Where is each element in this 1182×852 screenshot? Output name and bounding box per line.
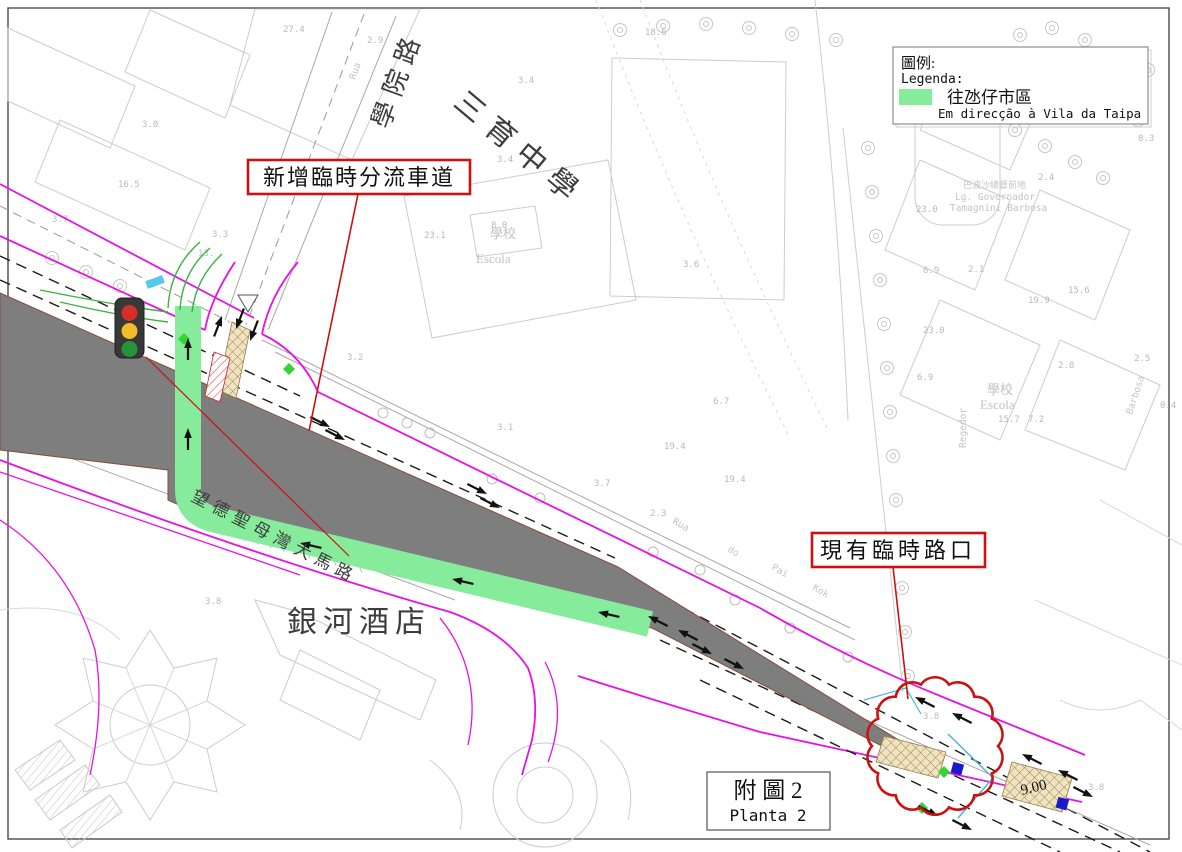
traffic-light-red: [122, 305, 138, 321]
measurement-label: 3.0: [142, 120, 158, 130]
drawing-number-pt: Planta 2: [729, 806, 806, 825]
escola-right-pt: Escola: [980, 397, 1015, 412]
legend: 圖例: Legenda: 往氹仔市區 Em direcção à Vila da…: [893, 47, 1151, 127]
measurement-label: 8.0: [491, 221, 507, 231]
measurement-label: 3.7: [594, 479, 610, 489]
traffic-light-yellow: [122, 323, 138, 339]
measurement-label: 3.3: [212, 230, 228, 240]
escola-right-cn: 學校: [987, 382, 1013, 397]
measurement-label: 16.5: [118, 180, 140, 190]
measurement-label: 6.9: [917, 373, 933, 383]
callout-existing-junction-label: 現有臨時路口: [820, 538, 976, 563]
measurement-label: 2.1: [968, 265, 984, 275]
measurement-label: 19.9: [1028, 296, 1050, 306]
measurement-label: 15.6: [1068, 286, 1090, 296]
legend-title-pt: Legenda:: [901, 72, 964, 87]
measurement-label: 2.4: [1038, 173, 1054, 183]
legend-title-cn: 圖例:: [901, 55, 935, 72]
measurement-label: 2.5: [1134, 354, 1150, 364]
largo-label-pt1: Lg. Governador: [955, 192, 1035, 203]
measurement-label: 8.3: [1138, 134, 1154, 144]
traffic-light-green: [122, 341, 138, 357]
measurement-label: 3.8: [205, 597, 221, 607]
largo-label-cn: 巴波沙總督前地: [963, 179, 1026, 190]
galaxy-hotel-label: 銀河酒店: [287, 606, 431, 639]
measurement-label: 0.4: [1160, 401, 1176, 411]
measurement-label: 23.1: [424, 231, 446, 241]
measurement-label: 3.8: [923, 712, 939, 722]
traffic-plan-drawing: 巴波沙總督前地 Lg. Governador Tamagnini Barbosa…: [0, 0, 1182, 852]
measurement-label: 23.0: [916, 205, 938, 215]
callout-new-lane-label: 新增臨時分流車道: [263, 165, 455, 190]
measurement-label: 15.7: [998, 415, 1020, 425]
measurement-label: 2.3: [650, 509, 666, 519]
legend-item-label-cn: 往氹仔市區: [947, 88, 1032, 107]
drawing-number-cn: 附 圖 2: [734, 778, 803, 803]
measurement-label: 18.6: [645, 28, 667, 38]
escola-mid-pt: Escola: [476, 251, 511, 266]
measurement-label: 27.4: [283, 25, 305, 35]
measurement-label: 3.6: [683, 260, 699, 270]
measurement-label: 19.4: [724, 475, 746, 485]
measurement-label: 7.2: [1028, 415, 1044, 425]
measurement-label: 2.8: [1058, 361, 1074, 371]
measurement-label: 6.9: [923, 266, 939, 276]
regedor-label: Regedor: [958, 408, 969, 448]
largo-label-pt2: Tamagnini Barbosa: [950, 203, 1047, 214]
measurement-label: 6.7: [713, 397, 729, 407]
legend-item-label-pt: Em direcção à Vila da Taipa: [938, 106, 1141, 121]
measurement-label: 3.1: [497, 423, 513, 433]
measurement-label: 3.8: [1088, 783, 1104, 793]
measurement-label: 3.2: [347, 353, 363, 363]
measurement-label: 3.4: [518, 76, 534, 86]
measurement-label: 19.4: [664, 442, 686, 452]
legend-swatch: [899, 89, 932, 105]
title-block: 附 圖 2 Planta 2: [707, 772, 830, 830]
measurement-label: 23.0: [923, 326, 945, 336]
measurement-label: 2.9: [367, 36, 383, 46]
